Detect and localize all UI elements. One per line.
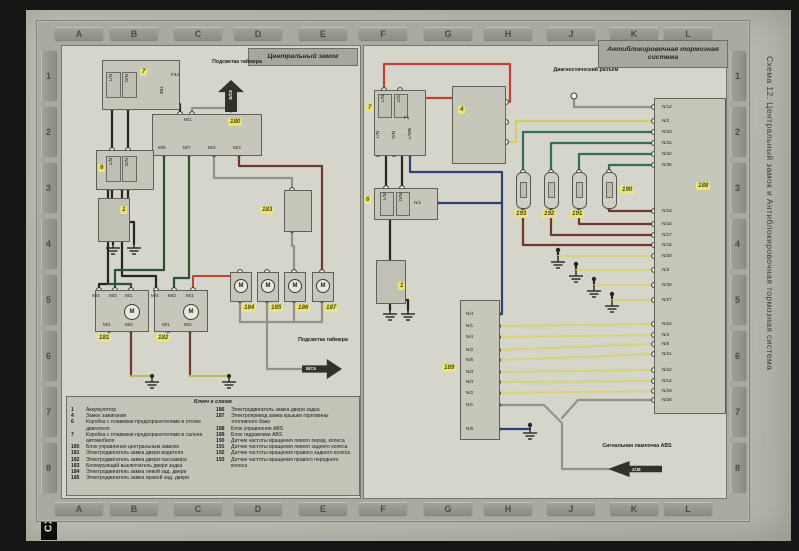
pin-label: M/1 [103, 322, 111, 327]
component-id: 184 [242, 304, 256, 312]
page-margin-title: Схема 12. Центральный замок и Антиблокир… [759, 56, 775, 496]
grid-letter-top: C [174, 27, 222, 40]
component-id: 192 [542, 210, 556, 218]
grid-number-left: 5 [41, 275, 56, 325]
grid-letter-bottom: F [359, 502, 407, 515]
pin-label: M/1 [184, 117, 192, 122]
component-id: 190 [620, 186, 634, 194]
grid-letter-bottom: E [299, 502, 347, 515]
grid-letter-top: L [664, 27, 712, 40]
component-id: 183 [260, 206, 274, 214]
grid-letter-bottom: D [234, 502, 282, 515]
component-id: 193 [514, 210, 528, 218]
pin-label: N/16 [662, 242, 672, 247]
component-switch-183 [284, 190, 312, 232]
pin-label: N/12 [662, 104, 672, 109]
component-id: 7 [366, 104, 373, 112]
pin-label: D/N [124, 158, 130, 166]
motor-symbol: M [234, 279, 248, 293]
component-id: 6 [364, 196, 371, 204]
legend-item: 187Электропривод замка крышки горловины … [216, 413, 355, 425]
pin-label: N/33 [662, 129, 672, 134]
pin-label: N/34 [662, 140, 672, 145]
pin-label: M/1 [125, 293, 133, 298]
grid-letter-top: K [610, 27, 658, 40]
pin-label: N/3 [466, 369, 473, 374]
pin-label: L/N [375, 131, 381, 138]
pin-label: N/5 [466, 426, 473, 431]
pin-label: M/3 [109, 293, 117, 298]
component-id: 188 [696, 182, 710, 190]
grid-number-right: 3 [730, 163, 745, 213]
pin-label: N/15 [662, 221, 672, 226]
legend-item: 6Коробка с плавкими предохранителями в о… [71, 419, 210, 431]
component-id: 6 [98, 164, 105, 172]
grid-number-right: 2 [730, 107, 745, 157]
wires-teal [523, 132, 654, 172]
component-id: 1 [120, 206, 127, 214]
fuse-label: F1 [404, 115, 409, 120]
grid-letter-bottom: A [55, 502, 103, 515]
grid-number-right: 8 [730, 443, 745, 493]
sensor-core [520, 182, 527, 198]
timer-note: Подсветка таймера [288, 338, 358, 344]
pin-label: M/4 [92, 293, 100, 298]
component-id: 4 [458, 106, 465, 114]
pin-label: L/N [108, 74, 114, 81]
pin-label: D/N [124, 74, 130, 82]
pin-label: N/17 [662, 232, 672, 237]
pin-label: N/27 [662, 297, 672, 302]
grid-letter-top: A [55, 27, 103, 40]
component-id: 7 [140, 68, 147, 76]
motor-symbol: M [261, 279, 275, 293]
pin-label: N/21 [662, 351, 672, 356]
component-id: 180 [228, 118, 242, 126]
pin-label: N/5 [662, 341, 669, 346]
grid-letter-top: E [299, 27, 347, 40]
grid-letter-top: H [484, 27, 532, 40]
pin-label: N/2 [662, 118, 669, 123]
pin-label: M/4 [208, 145, 216, 150]
pin-label: N/4 [466, 311, 473, 316]
grid-letter-top: J [547, 27, 595, 40]
scanned-photo: Схема 12. Центральный замок и Антиблокир… [0, 0, 799, 551]
pin-label: D/N [398, 193, 404, 201]
sensor-core [576, 182, 583, 198]
grid-number-right: 1 [730, 51, 745, 101]
grid-letter-bottom: H [484, 502, 532, 515]
pin-label: M/1 [186, 293, 194, 298]
pin-label: M/1 [162, 322, 170, 327]
grid-letter-bottom: B [110, 502, 158, 515]
panel-title-abs: Антиблокировочная тормозная система [598, 40, 728, 68]
component-id: 186 [296, 304, 310, 312]
grid-letter-top: D [234, 27, 282, 40]
component-id: 1 [398, 282, 405, 290]
diagnostic-note: Диагностический разъем [526, 68, 646, 74]
legend-key: Ключ к схеме 1Аккумулятор 4Замок зажиган… [66, 396, 360, 496]
pin-label: N/32 [662, 151, 672, 156]
fuse-label: F34 [171, 72, 179, 77]
component-id: 189 [442, 364, 456, 372]
grid-number-right: 7 [730, 387, 745, 437]
pin-label: N/1 [466, 402, 473, 407]
legend-item: 185Электродвигатель замка правой зад. дв… [71, 475, 210, 481]
grid-number-left: 6 [41, 331, 56, 381]
motor-symbol: M [288, 279, 302, 293]
pin-label: M/2 [184, 322, 192, 327]
timer-note: Подсветка таймера [202, 60, 272, 66]
pin-label: N/2 [466, 390, 473, 395]
grid-letter-top: F [359, 27, 407, 40]
pin-label: N/5 [466, 357, 473, 362]
motor-symbol: M [316, 279, 330, 293]
legend-title: Ключ к схеме [71, 399, 355, 405]
pin-label: N/18 [662, 208, 672, 213]
grid-number-right: 6 [730, 331, 745, 381]
component-id: 181 [97, 334, 111, 342]
grid-letter-bottom: C [174, 502, 222, 515]
pin-label: N/26 [662, 397, 672, 402]
pin-label: M/5 [158, 145, 166, 150]
grid-letter-top: B [110, 27, 158, 40]
pin-label: N/1 [414, 200, 421, 205]
pin-label: ЗВ1 [159, 86, 165, 94]
grid-number-left: 8 [41, 443, 56, 493]
pin-label: N/1 [466, 323, 473, 328]
grid-number-right: 4 [730, 219, 745, 269]
grid-number-left: 7 [41, 387, 56, 437]
legend-item: 7Коробка с плавкими предохранителями в с… [71, 432, 210, 444]
panel-central-lock: Центральный замок 7 F34 L/N D/N ЗВ1 M/1 … [61, 45, 361, 499]
panel-abs: Антиблокировочная тормозная система 7 L/… [363, 45, 727, 499]
grid-letter-bottom: K [610, 502, 658, 515]
grid-number-left: 3 [41, 163, 56, 213]
component-id: 191 [570, 210, 584, 218]
grid-letter-top: G [424, 27, 472, 40]
grid-number-left: 2 [41, 107, 56, 157]
component-id: 187 [324, 304, 338, 312]
grid-number-left: 4 [41, 219, 56, 269]
pin-label: N/20 [662, 253, 672, 258]
pin-label: M/3 [168, 293, 176, 298]
grid-letter-bottom: G [424, 502, 472, 515]
abs-lamp-arrow-label: 3/J8 [632, 467, 641, 472]
abs-lamp-note: Сигнальная лампочка ABS [592, 444, 682, 450]
grid-letter-bottom: L [664, 502, 712, 515]
component-control-unit-180 [152, 114, 262, 156]
timer-arrow-label: В/С6 [306, 366, 316, 371]
pin-label: M/4 [151, 293, 159, 298]
grid-number-left: 1 [41, 51, 56, 101]
pin-label: M/2 [125, 322, 133, 327]
pin-label: N/24 [662, 321, 672, 326]
pin-label: N/19 [662, 388, 672, 393]
grid-number-right: 5 [730, 275, 745, 325]
pin-label: N/22 [662, 367, 672, 372]
pin-label: N/2 [466, 347, 473, 352]
timer-arrow-label: В/С6 [228, 90, 233, 100]
component-ignition-4 [452, 86, 506, 164]
pin-label: N/4 [466, 334, 473, 339]
pin-label: N/35 [662, 162, 672, 167]
pin-label: M/3 [233, 145, 241, 150]
grid-letter-bottom: J [547, 502, 595, 515]
legend-column-left: 1Аккумулятор 4Замок зажигания 6Коробка с… [71, 407, 210, 481]
pin-label: L/N [382, 193, 388, 200]
pin-label: L/N [380, 95, 386, 102]
diagram-frame: A B C D E F G H J K L A B C D E F G H J … [36, 20, 750, 522]
pin-label: N/3 [466, 379, 473, 384]
pin-label: N/14 [662, 378, 672, 383]
motor-symbol: M [124, 304, 140, 320]
pin-label: N/4 [662, 332, 669, 337]
pin-label: N/3 [662, 267, 669, 272]
pin-label: L/WB [407, 128, 413, 139]
sensor-core [548, 182, 555, 198]
pin-label: N/28 [662, 282, 672, 287]
sensor-core [606, 182, 613, 198]
component-id: 185 [269, 304, 283, 312]
pin-label: D/N [391, 131, 397, 139]
legend-column-right: 186Электродвигатель замка двери задка 18… [216, 407, 355, 481]
manual-page: Схема 12. Центральный замок и Антиблокир… [26, 10, 791, 541]
pin-label: M/7 [183, 145, 191, 150]
legend-item: 193Датчик частоты вращения правого перед… [216, 457, 355, 469]
pin-label: L/N [108, 158, 114, 165]
component-id: 182 [156, 334, 170, 342]
component-battery [98, 198, 130, 242]
pin-label: L/G [396, 95, 402, 102]
motor-symbol: M [183, 304, 199, 320]
